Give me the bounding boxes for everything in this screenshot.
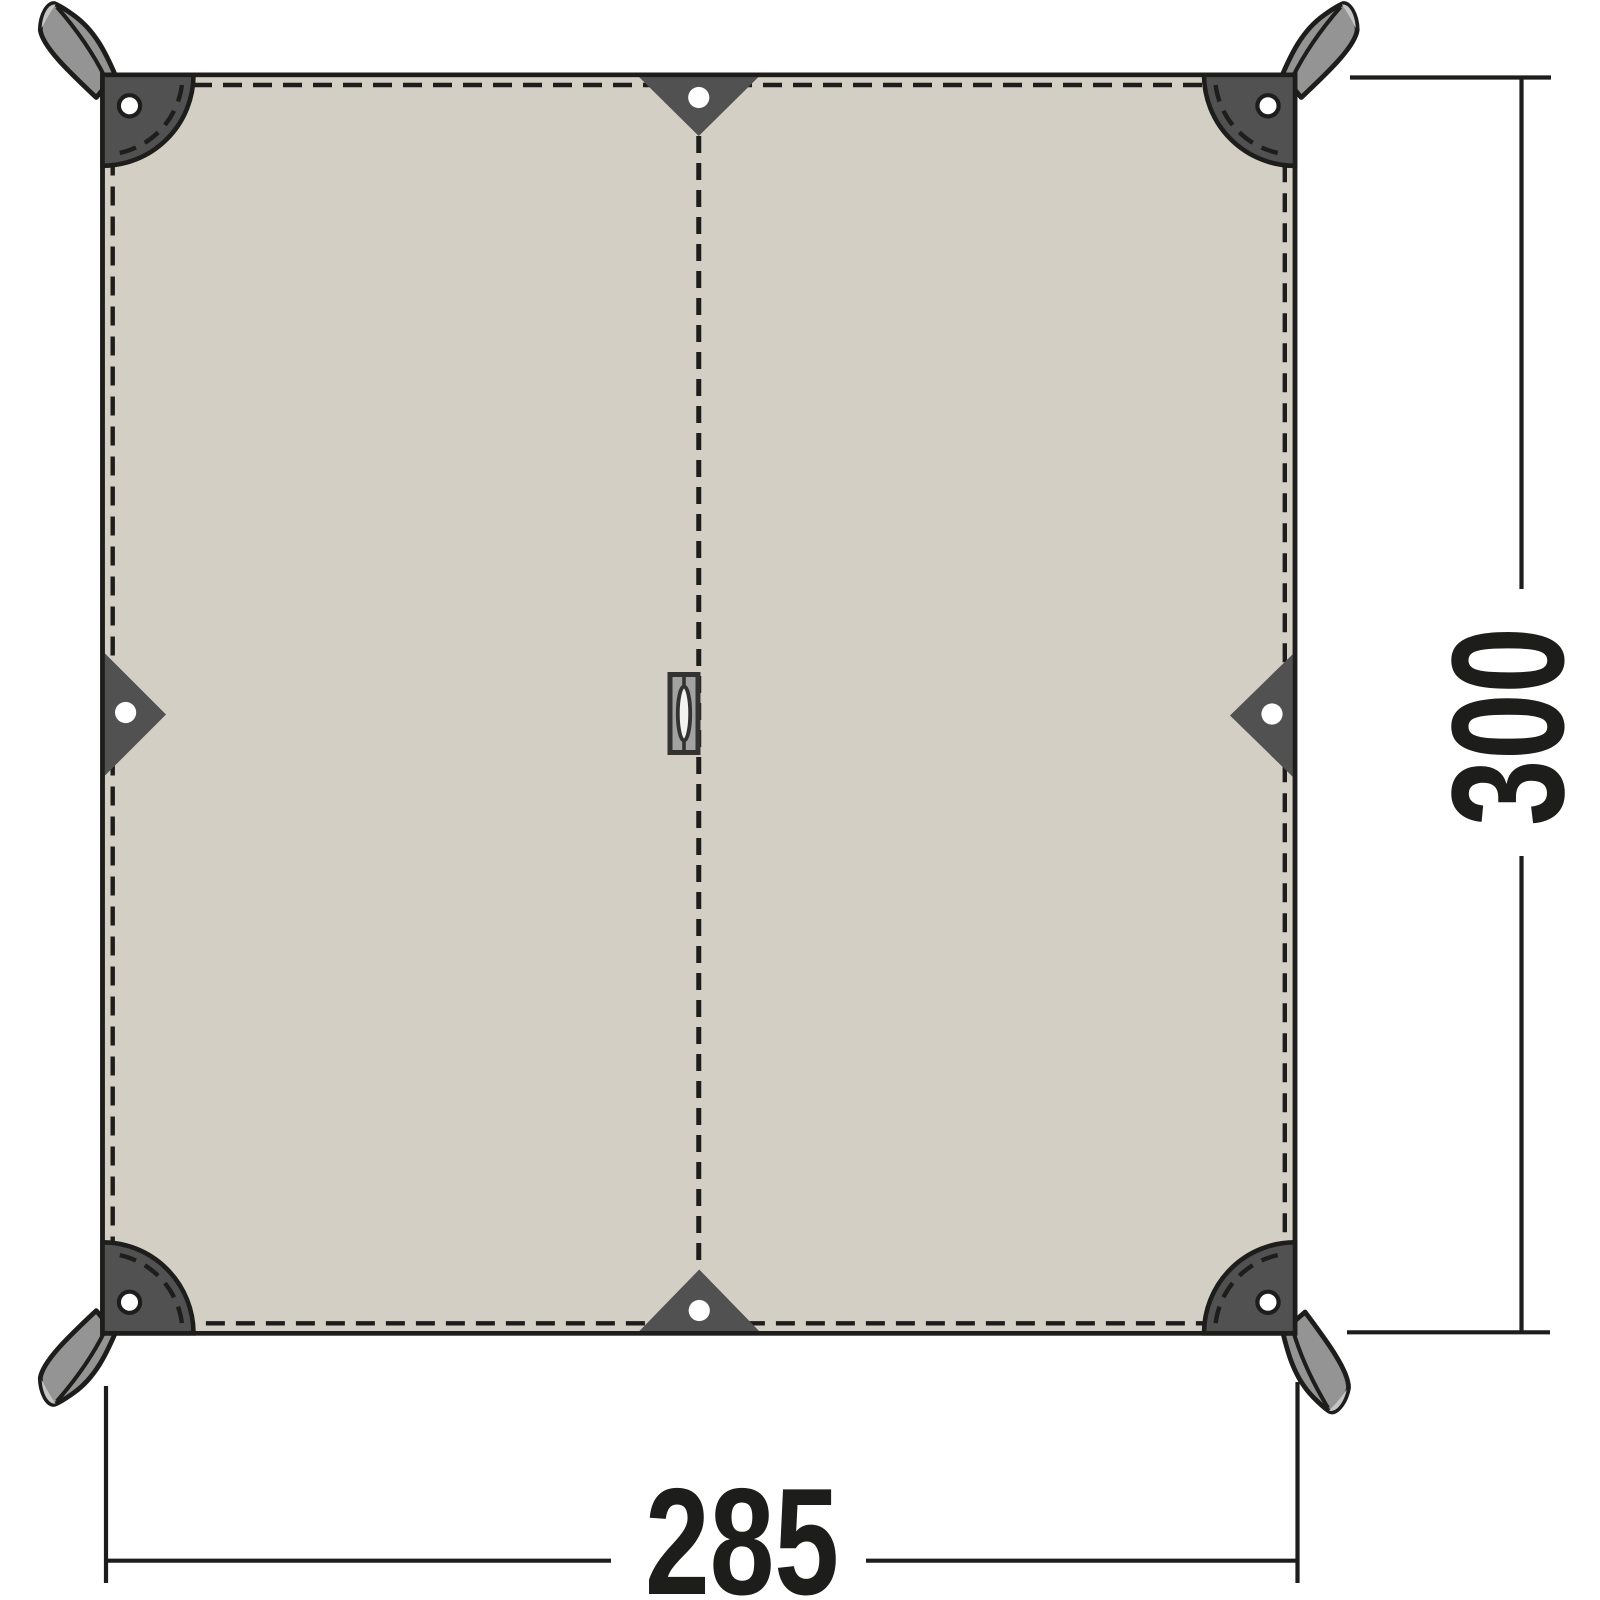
svg-text:285: 285 — [645, 1456, 839, 1600]
svg-text:300: 300 — [1418, 627, 1597, 826]
